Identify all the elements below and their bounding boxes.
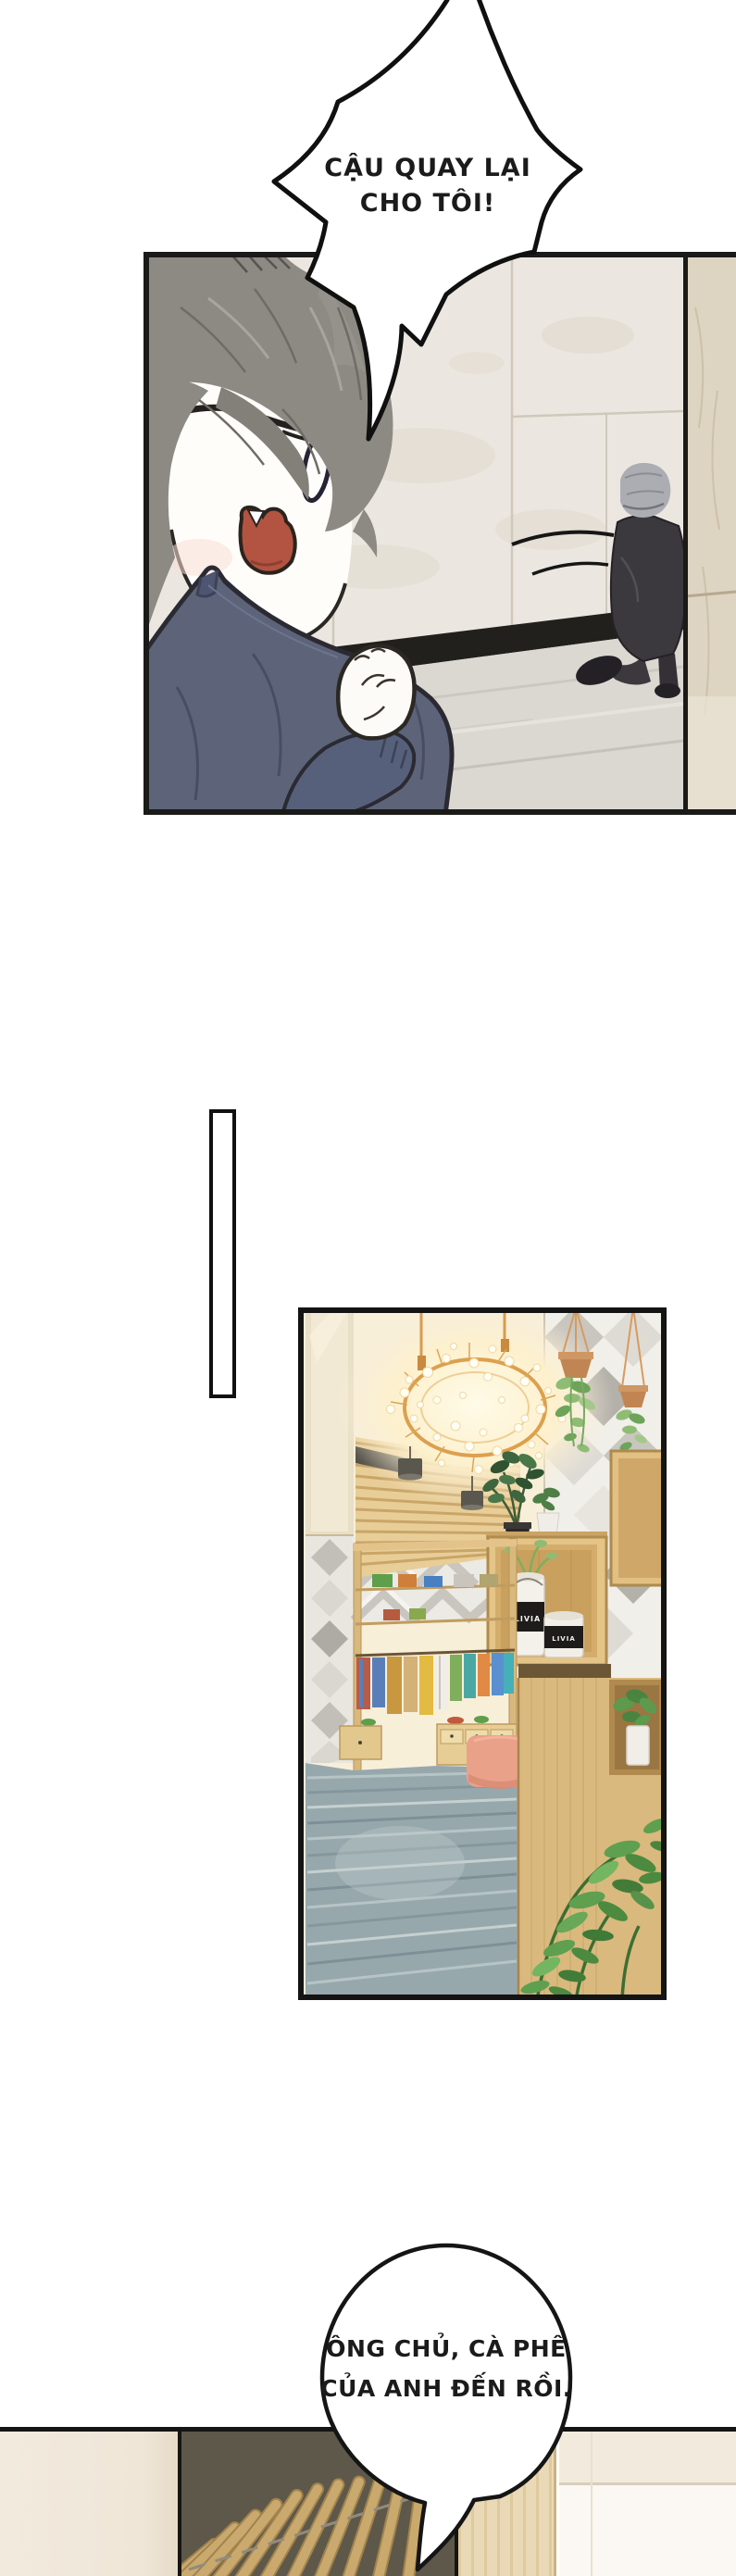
beige-wall bbox=[0, 2432, 178, 2576]
canister-label: LIVIA bbox=[552, 1635, 576, 1643]
shout-mouth bbox=[241, 507, 295, 573]
marble-pillar bbox=[683, 252, 736, 815]
carpet bbox=[306, 1763, 518, 2000]
empty-spacer-panel bbox=[209, 1109, 236, 1398]
comic-page: LIVIA LIVIA bbox=[0, 0, 736, 2576]
panel-shop: LIVIA LIVIA bbox=[298, 1307, 667, 2000]
shout-line-1: CẬU QUAY LẠI bbox=[324, 153, 531, 182]
speech-line-1: ÔNG CHỦ, CÀ PHÊ bbox=[326, 2332, 566, 2362]
speech-bubble: ÔNG CHỦ, CÀ PHÊ CỦA ANH ĐẾN RỒI. bbox=[310, 2227, 588, 2576]
canister-label: LIVIA bbox=[515, 1615, 541, 1623]
blush bbox=[166, 539, 232, 576]
shout-bubble: CẬU QUAY LẠI CHO TÔI! bbox=[236, 0, 625, 463]
speech-line-2: CỦA ANH ĐẾN RỒI. bbox=[320, 2371, 572, 2402]
light-glow bbox=[336, 1307, 614, 1507]
door-trim-line bbox=[591, 2432, 593, 2576]
shout-line-2: CHO TÔI! bbox=[360, 188, 496, 218]
canister-2: LIVIA bbox=[544, 1611, 583, 1657]
